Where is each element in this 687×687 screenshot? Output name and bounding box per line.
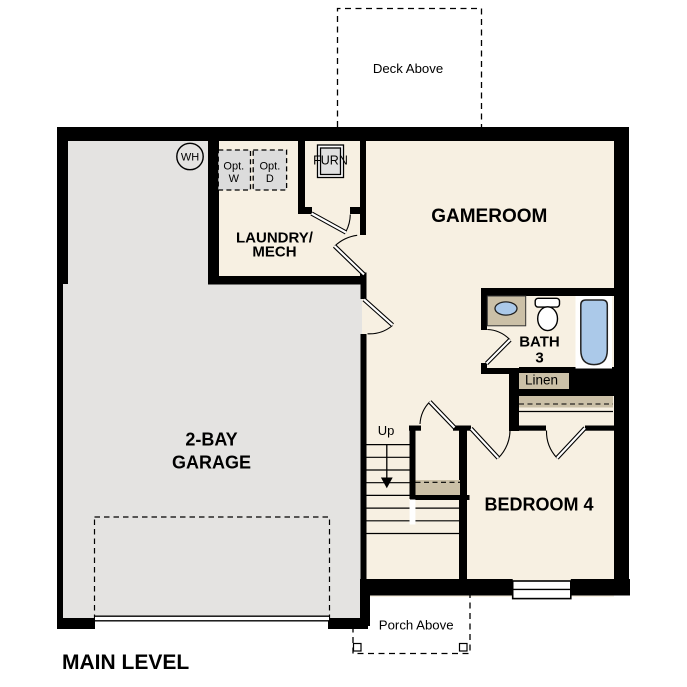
svg-text:GAMEROOM: GAMEROOM (431, 206, 547, 227)
svg-text:BEDROOM 4: BEDROOM 4 (484, 494, 593, 514)
svg-text:FURN: FURN (313, 154, 348, 168)
svg-text:W: W (229, 173, 240, 185)
svg-text:Linen: Linen (525, 373, 558, 388)
svg-text:D: D (266, 173, 274, 185)
svg-text:3: 3 (535, 350, 543, 367)
svg-text:Opt.: Opt. (260, 160, 281, 172)
svg-text:GARAGE: GARAGE (172, 453, 251, 473)
svg-text:2-BAY: 2-BAY (185, 430, 237, 450)
svg-text:Opt.: Opt. (223, 160, 244, 172)
svg-text:BATH: BATH (519, 334, 560, 351)
svg-text:Deck Above: Deck Above (373, 61, 443, 76)
svg-text:WH: WH (181, 152, 199, 164)
svg-text:MECH: MECH (252, 244, 296, 261)
svg-text:Up: Up (378, 423, 395, 438)
svg-text:MAIN LEVEL: MAIN LEVEL (62, 651, 189, 674)
svg-text:Porch Above: Porch Above (379, 617, 454, 632)
